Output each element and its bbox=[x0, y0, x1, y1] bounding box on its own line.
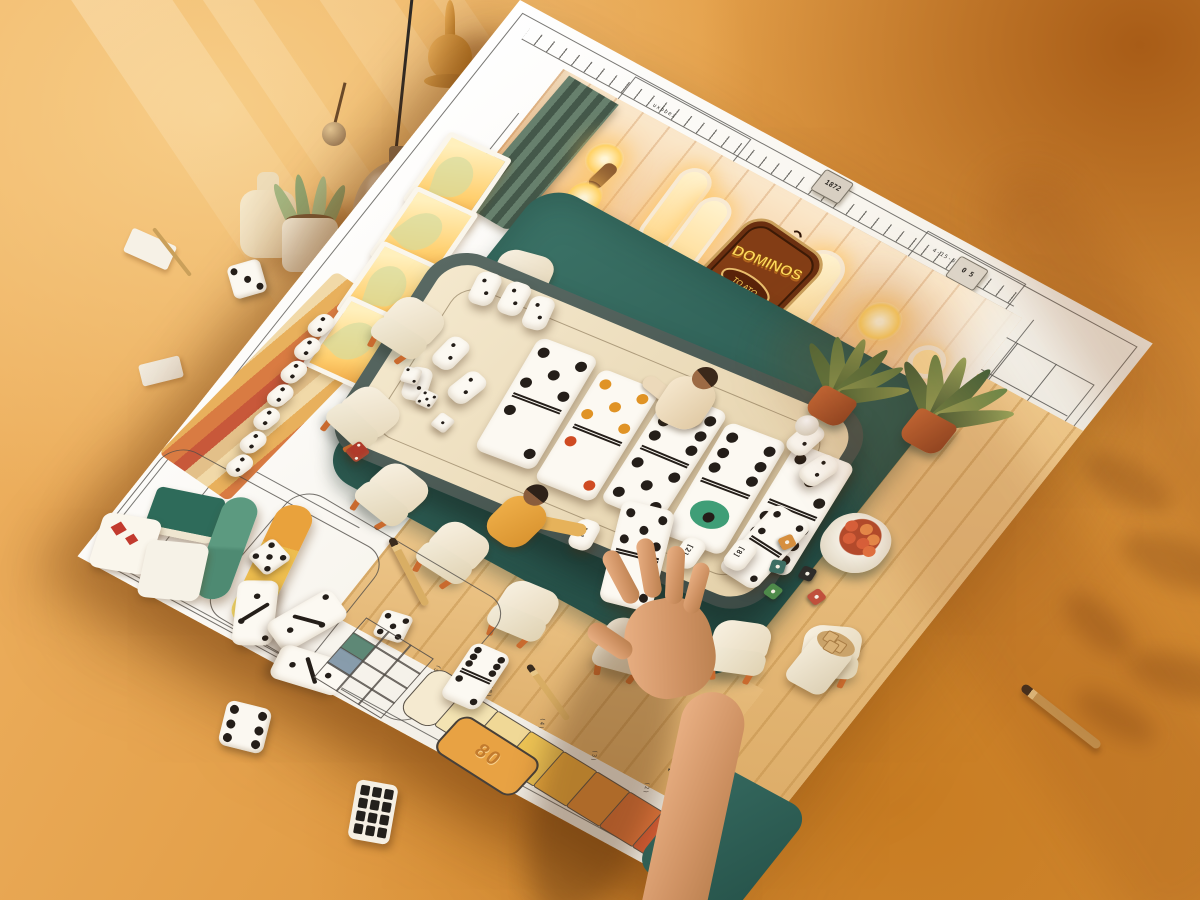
grid-square bbox=[358, 797, 369, 808]
leaf-shadow bbox=[1123, 642, 1200, 713]
desk-die-large bbox=[217, 699, 273, 755]
grid-square bbox=[372, 787, 383, 798]
finger bbox=[599, 547, 642, 607]
domino-pip bbox=[257, 711, 268, 722]
tile-mark bbox=[249, 444, 254, 449]
tile-mark bbox=[276, 397, 281, 402]
grid-square bbox=[360, 785, 371, 796]
grid-square bbox=[377, 827, 388, 838]
mini-strip-tile bbox=[222, 451, 257, 480]
grid-square bbox=[353, 823, 364, 834]
grid-square bbox=[379, 814, 390, 825]
tile-mark bbox=[293, 363, 298, 368]
domino-pip bbox=[253, 725, 264, 736]
grid-square bbox=[381, 802, 392, 813]
tile-mark bbox=[280, 387, 285, 392]
mini-strip-tile bbox=[276, 357, 311, 387]
leaf-shadow bbox=[1068, 680, 1163, 754]
paper-scrap bbox=[138, 355, 184, 387]
mini-strip-tile bbox=[236, 428, 271, 457]
domino-pip bbox=[226, 718, 237, 729]
scene-domino-room-diorama: uxbbei 4-15-51 oBBBE 1872 0 5 DOMINOS DO… bbox=[0, 0, 1200, 900]
ornament-stick bbox=[332, 82, 346, 127]
domino-pip bbox=[230, 267, 239, 276]
domino-pip bbox=[222, 732, 233, 743]
tile-mark bbox=[290, 374, 295, 379]
mini-strip-tile bbox=[263, 381, 298, 411]
grid-square bbox=[369, 799, 380, 810]
leaf-shadow bbox=[1113, 520, 1200, 605]
mini-strip-tile bbox=[304, 311, 339, 341]
finger bbox=[664, 546, 685, 605]
domino-pip bbox=[250, 739, 261, 750]
tile-mark bbox=[320, 316, 325, 321]
grid-square bbox=[365, 825, 376, 836]
tile-mark bbox=[317, 327, 322, 332]
forearm bbox=[634, 686, 751, 900]
ornament-ball bbox=[322, 122, 346, 146]
tile-mark bbox=[263, 421, 268, 426]
domino-pip bbox=[256, 282, 265, 291]
leaf-shadow bbox=[1054, 583, 1142, 667]
tile-mark bbox=[240, 457, 245, 462]
leaf-shadow bbox=[1076, 441, 1180, 525]
tile-mark bbox=[303, 350, 308, 355]
tile-mark bbox=[235, 467, 240, 472]
domino-pip bbox=[243, 275, 252, 284]
mini-strip-tile bbox=[290, 334, 325, 364]
mini-strip-tile bbox=[249, 404, 284, 433]
finger bbox=[682, 561, 712, 616]
grid-square bbox=[383, 789, 394, 800]
finger bbox=[635, 537, 663, 599]
player-arm bbox=[560, 500, 880, 900]
desk-pencil bbox=[1020, 683, 1103, 750]
tile-mark bbox=[253, 433, 258, 438]
domino-pip bbox=[229, 704, 240, 715]
tile-mark bbox=[267, 410, 272, 415]
grid-square bbox=[367, 812, 378, 823]
grid-square bbox=[355, 810, 366, 821]
black-grid-domino bbox=[347, 779, 399, 845]
tile-mark bbox=[307, 340, 312, 345]
